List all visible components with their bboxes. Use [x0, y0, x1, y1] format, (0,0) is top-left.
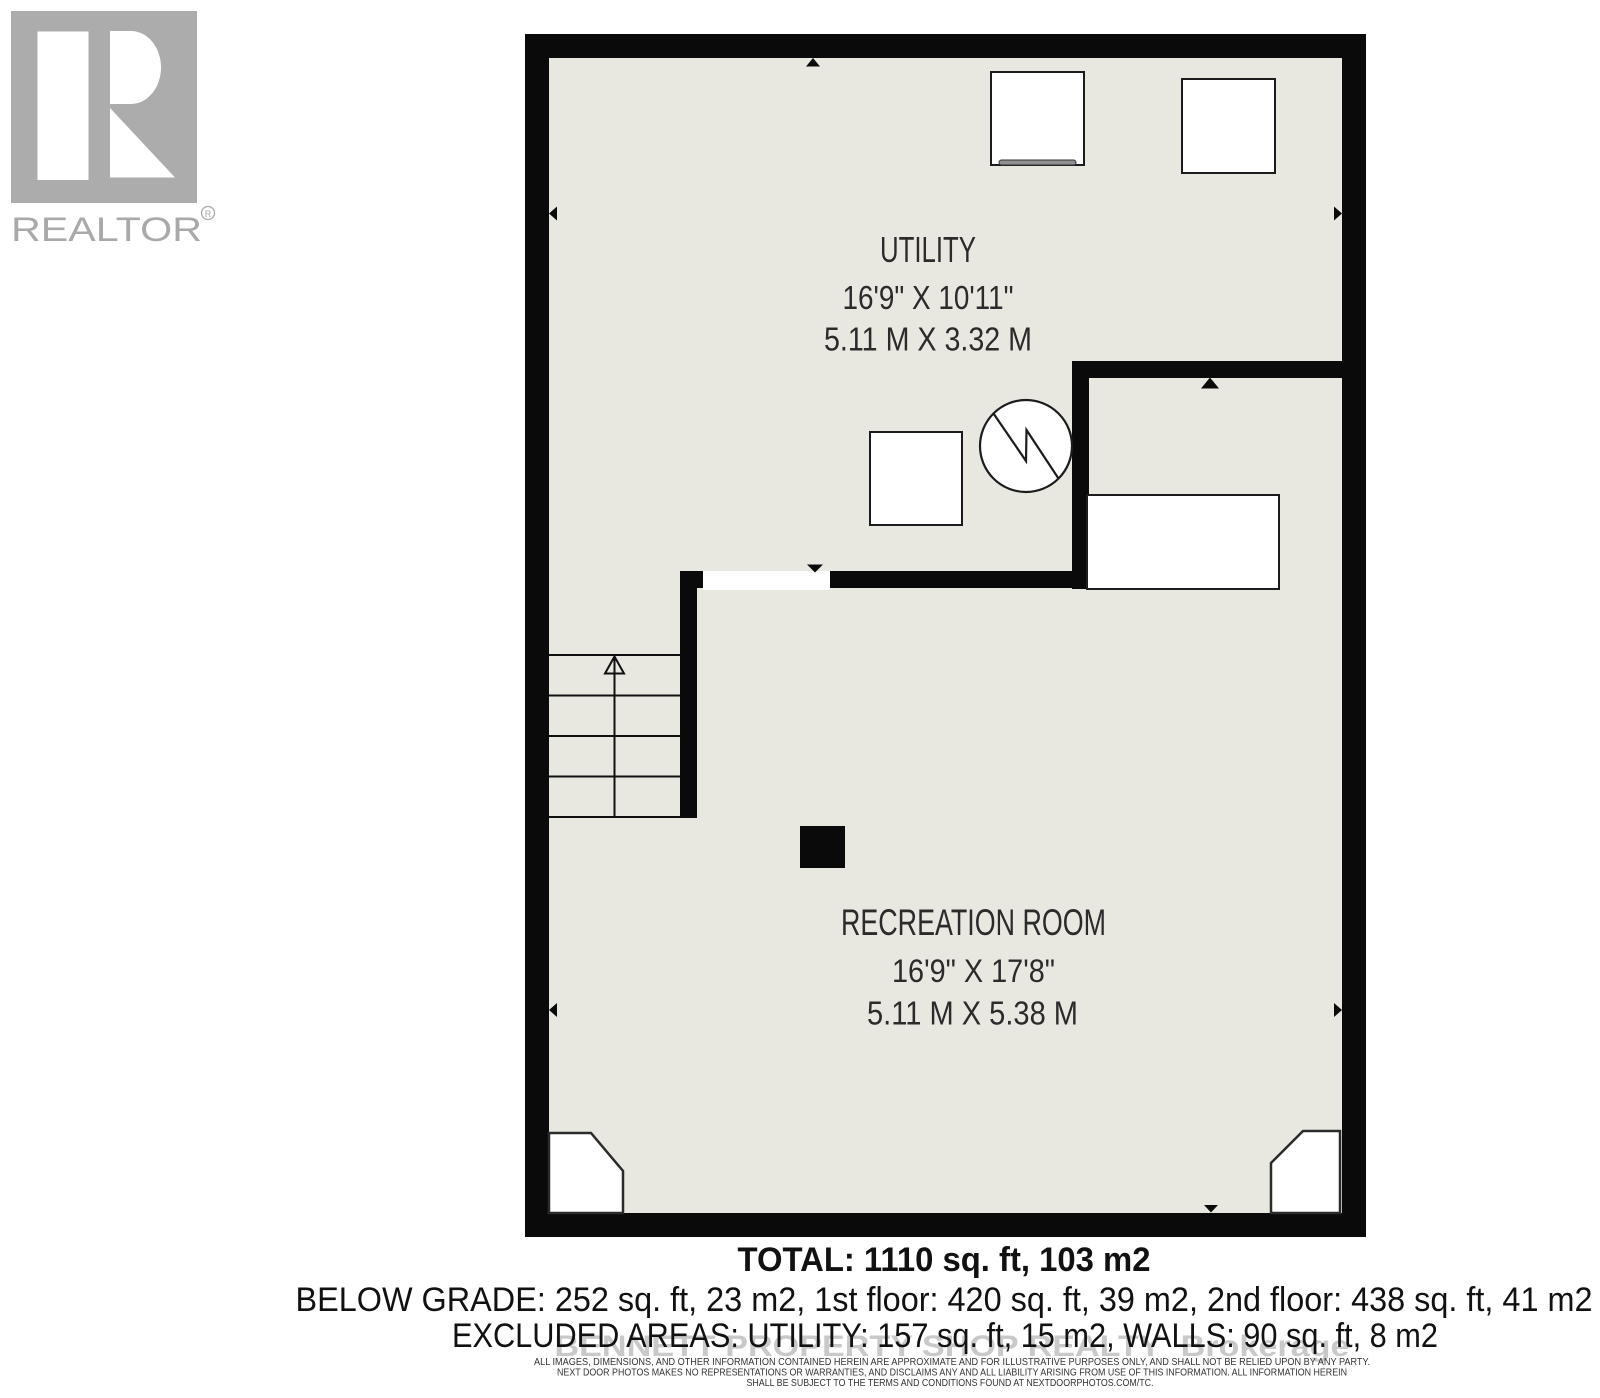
svg-text:EXCLUDED AREAS: UTILITY: 157 s: EXCLUDED AREAS: UTILITY: 157 sq. ft, 15 … — [452, 1317, 1438, 1355]
svg-text:BELOW GRADE: 252 sq. ft, 23 m2: BELOW GRADE: 252 sq. ft, 23 m2, 1st floo… — [296, 1281, 1593, 1319]
svg-text:5.11 M X 3.32 M: 5.11 M X 3.32 M — [824, 321, 1032, 358]
svg-text:REALTOR: REALTOR — [11, 211, 202, 249]
svg-text:5.11 M X 5.38 M: 5.11 M X 5.38 M — [867, 995, 1078, 1032]
svg-text:SHALL BE SUBJECT TO THE TERMS: SHALL BE SUBJECT TO THE TERMS AND CONDIT… — [747, 1378, 1154, 1389]
svg-text:R: R — [205, 209, 212, 219]
svg-text:NEXT DOOR PHOTOS MAKES NO REPR: NEXT DOOR PHOTOS MAKES NO REPRESENTATION… — [557, 1368, 1347, 1379]
svg-text:RECREATION ROOM: RECREATION ROOM — [841, 902, 1106, 943]
svg-text:TOTAL: 1110 sq. ft, 103 m2: TOTAL: 1110 sq. ft, 103 m2 — [738, 1241, 1151, 1279]
svg-text:UTILITY: UTILITY — [880, 229, 976, 270]
svg-text:16'9" X 10'11": 16'9" X 10'11" — [843, 279, 1014, 316]
svg-text:16'9" X 17'8": 16'9" X 17'8" — [892, 953, 1055, 989]
svg-text:ALL IMAGES, DIMENSIONS, AND OT: ALL IMAGES, DIMENSIONS, AND OTHER INFORM… — [534, 1357, 1370, 1368]
